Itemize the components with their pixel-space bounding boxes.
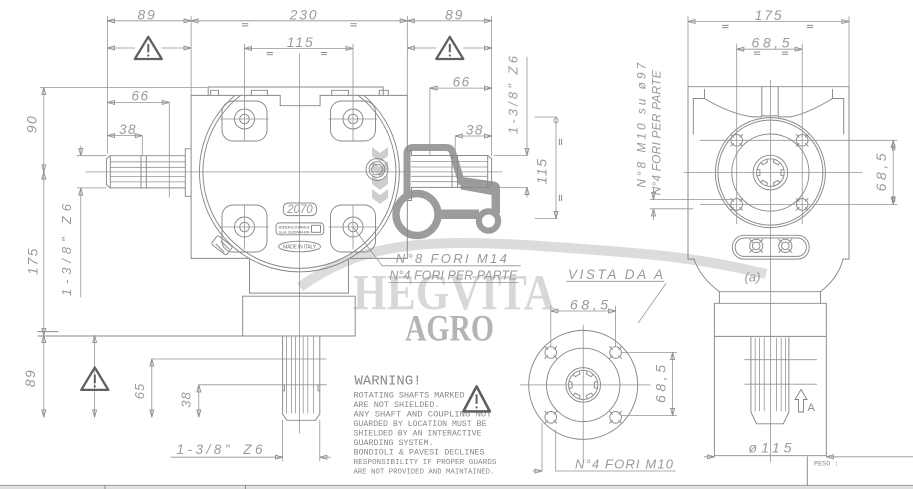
svg-text:89: 89 [137, 6, 156, 22]
svg-text:N°4 FORI M10: N°4 FORI M10 [575, 456, 674, 471]
svg-text:WARNING!: WARNING! [355, 375, 422, 390]
svg-text:175: 175 [25, 247, 41, 275]
svg-text:1-3/8" Z6: 1-3/8" Z6 [177, 442, 263, 457]
svg-text:90: 90 [24, 115, 40, 134]
svg-text:1-3/8" Z6: 1-3/8" Z6 [506, 55, 521, 134]
svg-text:VISTA DA A: VISTA DA A [568, 267, 663, 282]
svg-text:66: 66 [131, 89, 149, 104]
svg-text:115: 115 [534, 157, 550, 184]
svg-text:68,5: 68,5 [873, 153, 889, 191]
svg-text:ARE NOT PROVIDED AND MAINTAINE: ARE NOT PROVIDED AND MAINTAINED. [354, 468, 495, 476]
svg-text:115: 115 [287, 34, 315, 50]
svg-text:(a): (a) [745, 270, 761, 285]
svg-text:38: 38 [179, 391, 194, 407]
svg-text:89: 89 [445, 6, 464, 22]
svg-text:AGRO: AGRO [405, 309, 494, 350]
svg-text:68,5: 68,5 [752, 35, 790, 51]
svg-text:PESO :: PESO : [814, 461, 838, 469]
svg-text:175: 175 [755, 7, 784, 23]
svg-text:1-3/8" Z6: 1-3/8" Z6 [59, 203, 74, 296]
svg-text:N°4 FORI PER PARTE: N°4 FORI PER PARTE [649, 69, 663, 195]
svg-text:MADE IN ITALY: MADE IN ITALY [283, 244, 317, 250]
svg-text:GUARDED BY LOCATION MUST BE: GUARDED BY LOCATION MUST BE [354, 419, 487, 429]
svg-text:66: 66 [453, 74, 471, 89]
svg-text:230: 230 [289, 6, 319, 22]
svg-text:BONDIOLI & PAVESI DECLINES: BONDIOLI & PAVESI DECLINES [354, 448, 485, 458]
svg-text:A: A [808, 402, 816, 414]
svg-text:68,5: 68,5 [570, 296, 608, 312]
svg-text:68,5: 68,5 [653, 365, 669, 403]
svg-text:65: 65 [132, 383, 147, 399]
svg-text:RESPONSIBILITY IF PROPER GUARD: RESPONSIBILITY IF PROPER GUARDS [354, 459, 497, 467]
svg-text:S.p.A. SUZZARA MN: S.p.A. SUZZARA MN [279, 229, 310, 234]
svg-text:2070: 2070 [286, 204, 313, 216]
svg-text:GUARDING SYSTEM.: GUARDING SYSTEM. [354, 438, 434, 448]
svg-text:89: 89 [22, 369, 38, 388]
svg-text:38: 38 [119, 122, 137, 137]
svg-text:ARE NOT SHIELDED.: ARE NOT SHIELDED. [354, 400, 440, 410]
svg-text:ROTATING SHAFTS MARKED: ROTATING SHAFTS MARKED [354, 391, 465, 401]
svg-text:N°4 FORI PER PARTE: N°4 FORI PER PARTE [389, 269, 518, 283]
svg-text:SHIELDED BY AN INTERACTIVE: SHIELDED BY AN INTERACTIVE [354, 429, 482, 439]
svg-text:38: 38 [466, 122, 484, 137]
